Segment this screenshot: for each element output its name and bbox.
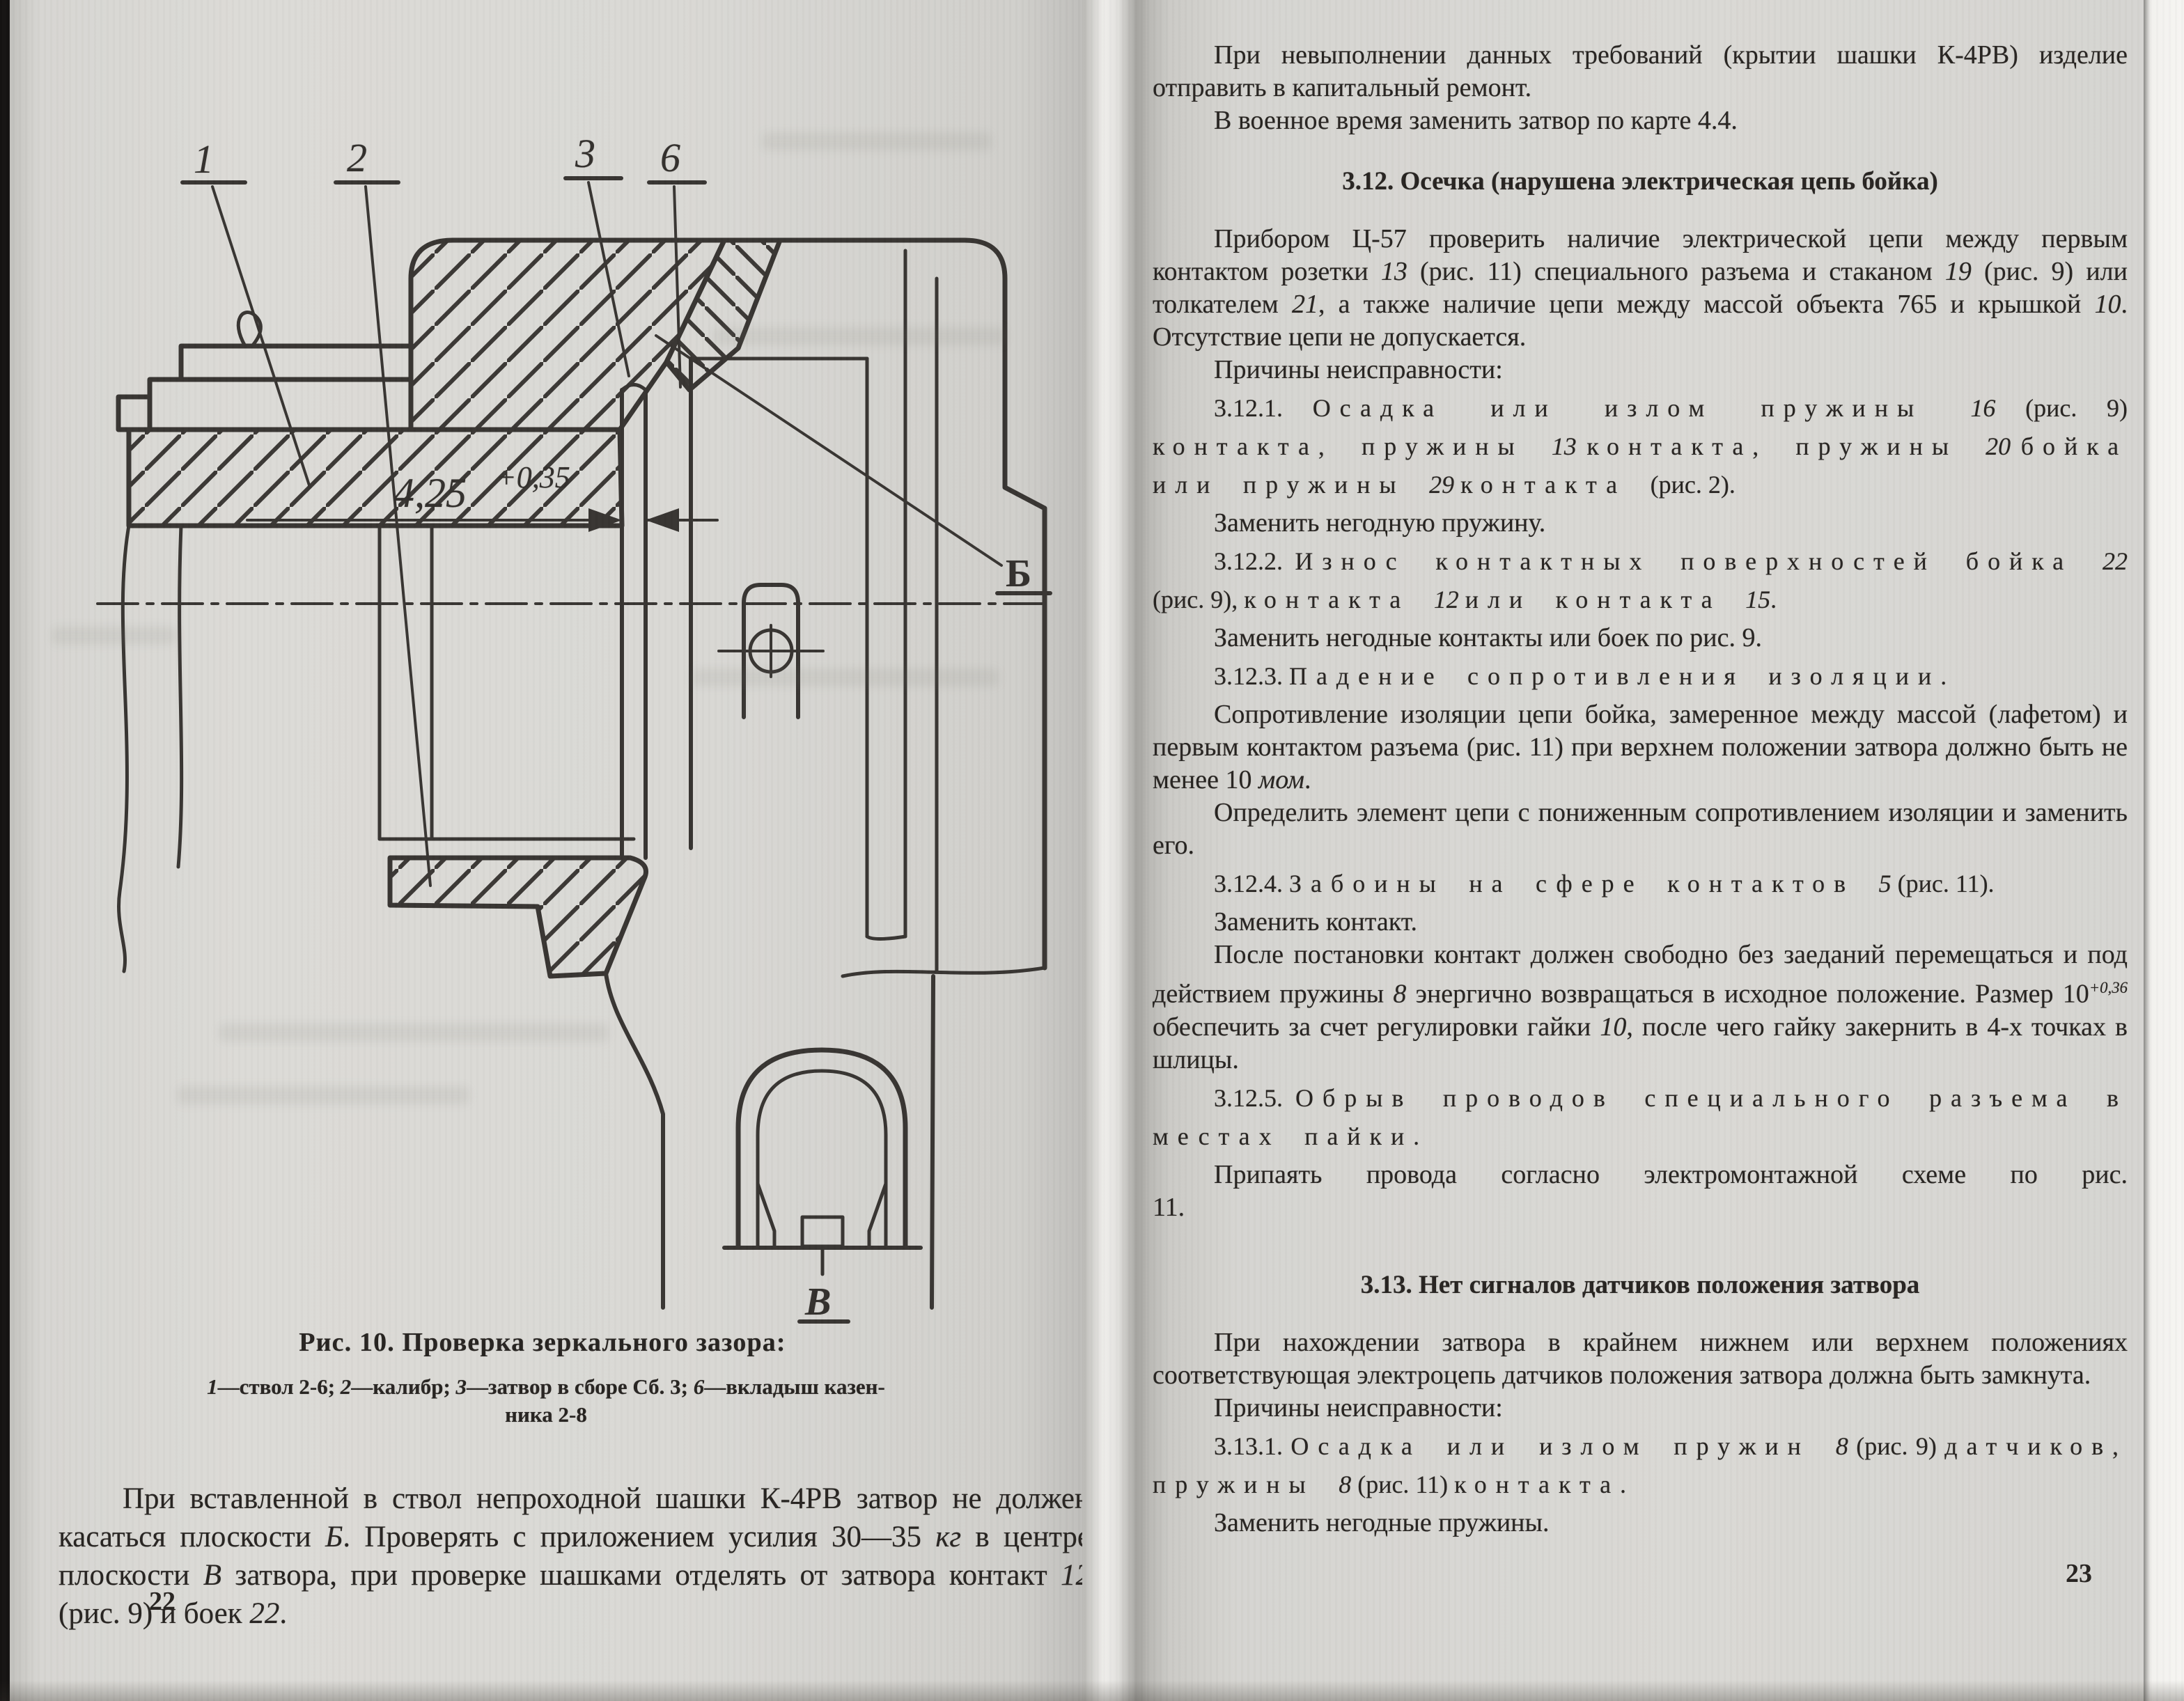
figure-label-3: 3 bbox=[575, 131, 595, 176]
paragraph: Прибором Ц-57 проверить наличие электрич… bbox=[1153, 223, 2128, 354]
text-run: 16 bbox=[1970, 394, 1995, 422]
text-run: (рис. 11). bbox=[1891, 870, 1995, 897]
figure-drawing: 1 2 3 6 Б В 4,25 +0,35 bbox=[63, 91, 1079, 1337]
right-page: При невыполнении данных требований (крыт… bbox=[1146, 0, 2144, 1701]
text-column: При невыполнении данных требований (крыт… bbox=[1153, 39, 2128, 1539]
text-run: 12 bbox=[1434, 586, 1459, 613]
text-run: затвора, при проверке шашками отделять о… bbox=[221, 1559, 1061, 1592]
text-run: 22 bbox=[249, 1597, 279, 1630]
text-run: При нахождении затвора в крайнем нижнем … bbox=[1153, 1328, 2128, 1390]
text-run: 5 bbox=[1879, 870, 1891, 897]
text-run: 8 bbox=[1393, 980, 1406, 1009]
text-run: 8 bbox=[1836, 1432, 1848, 1460]
text-run bbox=[1454, 471, 1460, 499]
text-run: , а также наличие цепи между массой объе… bbox=[1318, 290, 2095, 319]
page-number-right: 23 bbox=[2066, 1558, 2092, 1589]
text-run: Причины неисправности: bbox=[1214, 1393, 1503, 1422]
figure-barrel-step bbox=[150, 379, 411, 430]
dimension-tolerance: +0,35 bbox=[496, 460, 570, 494]
text-run: 29 bbox=[1429, 471, 1454, 499]
text-run: 13 bbox=[1381, 257, 1407, 286]
text-run: (рис. 9), bbox=[1153, 586, 1244, 613]
text-run: 3.12.2. bbox=[1214, 547, 1295, 575]
text-run: Осадка или излом пружины bbox=[1313, 394, 1971, 422]
text-run: (рис. 9) bbox=[1995, 394, 2128, 422]
text-run: Забоины на сфере контактов bbox=[1289, 870, 1879, 897]
text-run: Падение сопротивления изоляции. bbox=[1289, 662, 1956, 690]
text-run: Б bbox=[325, 1521, 343, 1553]
paragraph: Заменить негодные пружины. bbox=[1153, 1507, 2128, 1539]
text-run: 3.13.1. bbox=[1214, 1432, 1290, 1460]
section-heading: 3.13. Нет сигналов датчиков положения за… bbox=[1153, 1269, 2128, 1301]
text-run: . bbox=[279, 1597, 287, 1630]
text-run: . bbox=[1770, 586, 1777, 613]
paragraph: В военное время заменить затвор по карте… bbox=[1153, 104, 2128, 137]
text-run: —ствол 2-6; bbox=[218, 1374, 341, 1399]
gutter-shadow bbox=[1082, 0, 1146, 1701]
figure-label-2: 2 bbox=[347, 135, 367, 180]
figure-legend-line: 1—ствол 2-6; 2—калибр; 3—затвор в сборе … bbox=[93, 1373, 999, 1401]
text-run: (рис. 11) специального разъема и стакано… bbox=[1407, 257, 1945, 286]
paragraph: 3.12.5. Обрыв проводов специального разъ… bbox=[1153, 1079, 2128, 1156]
text-run: —вкладыш казен- bbox=[704, 1374, 885, 1399]
figure-label-b: Б bbox=[1006, 552, 1031, 595]
paragraph: Причины неисправности: bbox=[1153, 1392, 2128, 1425]
text-run: 20 bbox=[1986, 432, 2011, 460]
paragraph: Определить элемент цепи с пониженным соп… bbox=[1153, 797, 2128, 862]
text-run: +0,36 bbox=[2089, 979, 2128, 996]
text-run: 8 bbox=[1339, 1471, 1351, 1498]
bottom-shadow bbox=[0, 1680, 2184, 1701]
text-run: 3.12.3. bbox=[1214, 662, 1289, 690]
text-run: контакта, пружины bbox=[1153, 432, 1552, 460]
figure-barrel-step bbox=[181, 346, 411, 379]
paragraph: 3.12.4. Забоины на сфере контактов 5 (ри… bbox=[1153, 865, 2128, 903]
text-run: обеспечить за счет регулировки гайки bbox=[1153, 1012, 1600, 1042]
text-run: 2 bbox=[341, 1374, 352, 1399]
text-run: —калибр; bbox=[351, 1374, 455, 1399]
figure-leader-b bbox=[656, 336, 1001, 565]
text-run: энергично возвращаться в исходное положе… bbox=[1406, 980, 2089, 1009]
text-run: 10 bbox=[1600, 1012, 1626, 1042]
text-run: Заменить негодную пружину. bbox=[1214, 508, 1545, 538]
text-run: Припаять провода согласно электромонтажн… bbox=[1153, 1160, 2128, 1222]
dimension-text: 4,25 bbox=[393, 470, 467, 516]
figure-legend: 1—ствол 2-6; 2—калибр; 3—затвор в сборе … bbox=[93, 1373, 999, 1429]
text-run: 15 bbox=[1745, 586, 1770, 613]
text-run: 3.12.4. bbox=[1214, 870, 1289, 897]
page-number-left: 22 bbox=[149, 1586, 175, 1617]
book-scan: 1 2 3 6 Б В 4,25 +0,35 Рис. 10. Проверка… bbox=[0, 0, 2184, 1701]
text-run: 3.13. Нет сигналов датчиков положения за… bbox=[1361, 1271, 1920, 1299]
text-run bbox=[1577, 432, 1587, 460]
body-paragraph: При вставленной в ствол непроходной шашк… bbox=[58, 1480, 1091, 1633]
text-run: 21 bbox=[1292, 290, 1318, 319]
text-run: контакта bbox=[1244, 586, 1433, 613]
text-run: (рис. 11) bbox=[1351, 1471, 1454, 1498]
page-edge bbox=[2144, 0, 2184, 1701]
text-run: или контакта bbox=[1465, 586, 1745, 613]
text-run: кг bbox=[935, 1521, 961, 1553]
text-run: контакта bbox=[1460, 471, 1650, 499]
paragraph: Сопротивление изоляции цепи бойка, замер… bbox=[1153, 698, 2128, 797]
text-run: . Проверять с приложением усилия 30—35 bbox=[343, 1521, 935, 1553]
text-run bbox=[2011, 432, 2021, 460]
text-run: 22 bbox=[2103, 547, 2128, 575]
paragraph: 3.13.1. Осадка или излом пружин 8 (рис. … bbox=[1153, 1427, 2128, 1504]
paragraph: 3.12.3. Падение сопротивления изоляции. bbox=[1153, 657, 2128, 696]
paragraph: 3.12.2. Износ контактных поверхностей бо… bbox=[1153, 542, 2128, 619]
text-run: 13 bbox=[1552, 432, 1577, 460]
paragraph: Заменить контакт. bbox=[1153, 906, 2128, 939]
left-page: 1 2 3 6 Б В 4,25 +0,35 Рис. 10. Проверка… bbox=[10, 0, 1082, 1701]
paragraph: Припаять провода согласно электромонтажн… bbox=[1153, 1159, 2128, 1224]
figure-dome-inner bbox=[758, 1071, 886, 1246]
paragraph: 3.12.1. Осадка или излом пружины 16 (рис… bbox=[1153, 389, 2128, 504]
figure-barrel-step bbox=[118, 397, 150, 430]
text-run: Определить элемент цепи с пониженным соп… bbox=[1153, 798, 2128, 860]
paragraph: При нахождении затвора в крайнем нижнем … bbox=[1153, 1326, 2128, 1392]
text-run: ника 2-8 bbox=[505, 1402, 587, 1427]
text-run: Заменить негодные пружины. bbox=[1214, 1508, 1550, 1537]
text-run: (рис. 9) bbox=[1848, 1432, 1944, 1460]
text-run: 3 bbox=[456, 1374, 467, 1399]
text-run: . bbox=[1304, 765, 1311, 794]
paragraph: При невыполнении данных требований (крыт… bbox=[1153, 39, 2128, 104]
paragraph: Заменить негодную пружину. bbox=[1153, 507, 2128, 540]
text-run: мом bbox=[1258, 765, 1304, 794]
figure-label-v: В bbox=[804, 1280, 831, 1324]
text-run: контакта, пружины bbox=[1586, 432, 1986, 460]
text-run: Причины неисправности: bbox=[1214, 355, 1503, 384]
figure-pin-detail bbox=[802, 1217, 843, 1246]
paragraph: После постановки контакт должен свободно… bbox=[1153, 939, 2128, 1076]
text-run: В bbox=[203, 1559, 221, 1592]
text-run: 1 bbox=[207, 1374, 218, 1399]
text-run: 3.12.1. bbox=[1214, 394, 1313, 422]
text-run: —затвор в сборе Сб. 3; bbox=[467, 1374, 694, 1399]
figure-label-1: 1 bbox=[194, 136, 214, 182]
paragraph: Заменить негодные контакты или боек по р… bbox=[1153, 622, 2128, 654]
text-run bbox=[1459, 586, 1465, 613]
text-run: 10 bbox=[2095, 290, 2121, 319]
text-run: контакта. bbox=[1454, 1471, 1635, 1498]
figure-legend-line: ника 2-8 bbox=[93, 1401, 999, 1429]
figure-label-6: 6 bbox=[660, 135, 680, 180]
text-run: (рис. 2). bbox=[1651, 471, 1735, 499]
text-run: Осадка или излом пружин bbox=[1290, 1432, 1835, 1460]
figure-caption: Рис. 10. Проверка зеркального зазора: bbox=[45, 1327, 1040, 1358]
text-run: 19 bbox=[1945, 257, 1972, 286]
text-run: Заменить контакт. bbox=[1214, 907, 1417, 936]
text-run: Заменить негодные контакты или боек по р… bbox=[1214, 623, 1762, 652]
text-run: Обрыв проводов специального разъема в ме… bbox=[1153, 1084, 2128, 1150]
text-run: Износ контактных поверхностей бойка bbox=[1295, 547, 2103, 575]
text-run: 3.12.5. bbox=[1214, 1084, 1295, 1112]
paragraph: Причины неисправности: bbox=[1153, 354, 2128, 386]
text-run: В военное время заменить затвор по карте… bbox=[1214, 106, 1738, 135]
text-run: 3.12. Осечка (нарушена электрическая цеп… bbox=[1342, 167, 1938, 196]
text-run: 6 bbox=[694, 1374, 705, 1399]
text-run: При невыполнении данных требований (крыт… bbox=[1153, 40, 2128, 102]
section-heading: 3.12. Осечка (нарушена электрическая цеп… bbox=[1153, 165, 2128, 198]
